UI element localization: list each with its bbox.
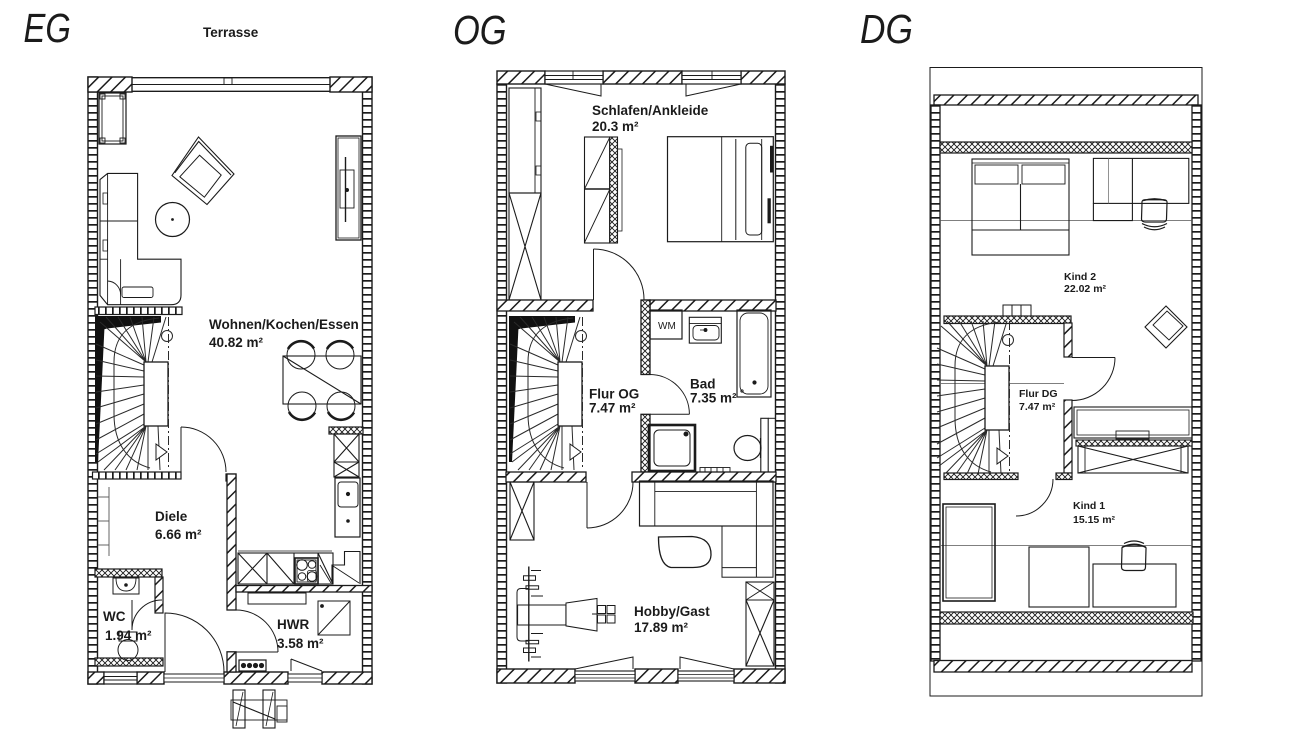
svg-text:7.35 m²: 7.35 m² (690, 391, 737, 406)
svg-text:Terrasse: Terrasse (203, 25, 259, 40)
svg-text:HWR: HWR (277, 617, 309, 632)
svg-text:7.47 m²: 7.47 m² (589, 401, 636, 416)
svg-text:OG: OG (453, 8, 507, 53)
svg-text:Bad: Bad (690, 377, 716, 392)
svg-text:17.89 m²: 17.89 m² (634, 620, 689, 635)
svg-text:22.02 m²: 22.02 m² (1064, 283, 1107, 295)
svg-text:Wohnen/Kochen/Essen: Wohnen/Kochen/Essen (209, 317, 359, 332)
svg-text:WM: WM (658, 321, 676, 332)
svg-text:20.3 m²: 20.3 m² (592, 119, 639, 134)
svg-text:3.58 m²: 3.58 m² (277, 636, 324, 651)
svg-text:Flur OG: Flur OG (589, 387, 639, 402)
svg-text:WC: WC (103, 609, 126, 624)
svg-text:6.66 m²: 6.66 m² (155, 527, 202, 542)
svg-text:15.15 m²: 15.15 m² (1073, 514, 1116, 526)
svg-text:40.82 m²: 40.82 m² (209, 335, 264, 350)
svg-text:Hobby/Gast: Hobby/Gast (634, 604, 710, 619)
svg-text:DG: DG (860, 7, 913, 53)
svg-text:Kind 2: Kind 2 (1064, 271, 1096, 283)
svg-text:Schlafen/Ankleide: Schlafen/Ankleide (592, 103, 709, 118)
svg-text:Diele: Diele (155, 509, 188, 524)
svg-text:EG: EG (24, 4, 71, 50)
svg-text:Kind 1: Kind 1 (1073, 500, 1105, 512)
svg-text:Flur DG: Flur DG (1019, 388, 1058, 400)
svg-text:7.47 m²: 7.47 m² (1019, 401, 1056, 413)
